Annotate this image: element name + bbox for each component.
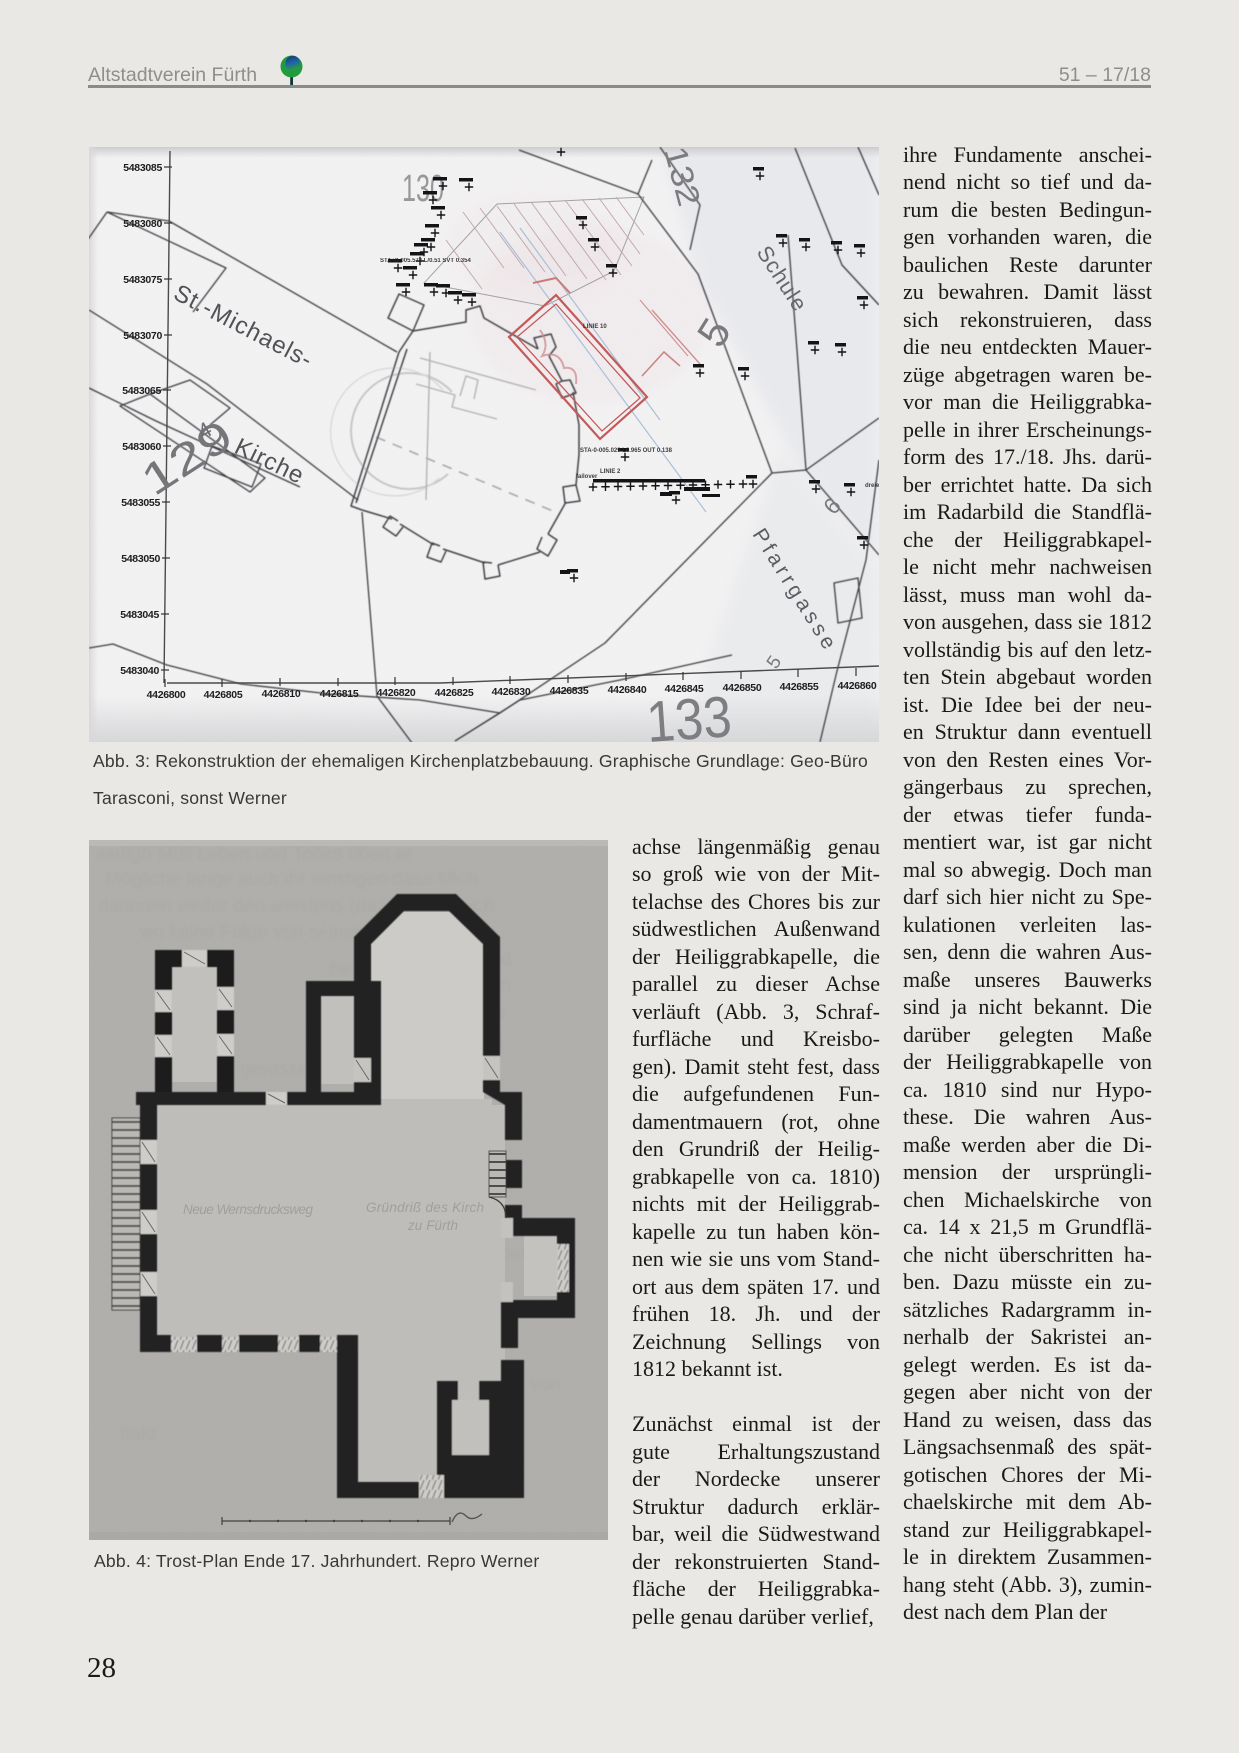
svg-text:5483070: 5483070 <box>123 330 162 342</box>
svg-text:4426860: 4426860 <box>838 680 877 692</box>
svg-text:5483085: 5483085 <box>123 162 162 174</box>
svg-text:zu Fürth: zu Fürth <box>407 1218 458 1233</box>
svg-text:4426840: 4426840 <box>608 684 647 696</box>
svg-text:130: 130 <box>402 168 444 210</box>
svg-text:5483080: 5483080 <box>123 218 162 230</box>
svg-text:STA+0-005.574 L/0.51 SVT 0.354: STA+0-005.574 L/0.51 SVT 0.354 <box>380 258 471 264</box>
svg-text:4426830: 4426830 <box>492 686 531 698</box>
svg-text:Neue Wernsdrucksweg: Neue Wernsdrucksweg <box>183 1202 313 1217</box>
svg-text:failover: failover <box>576 474 598 480</box>
svg-text:5483075: 5483075 <box>123 274 162 286</box>
svg-text:bald: bald <box>120 1424 156 1445</box>
svg-text:LINIE 2: LINIE 2 <box>600 469 621 475</box>
svg-text:133: 133 <box>644 684 733 742</box>
svg-text:asdfgh Müll Leben und Todes üb: asdfgh Müll Leben und Todes üben er <box>95 844 413 865</box>
svg-text:STA-0-005.029 L6.965 OUT 0.138: STA-0-005.029 L6.965 OUT 0.138 <box>580 448 673 454</box>
svg-text:5483040: 5483040 <box>120 665 159 677</box>
svg-text:4426855: 4426855 <box>780 681 819 693</box>
svg-text:4426835: 4426835 <box>550 685 589 697</box>
svg-text:Gründriß des Kirch: Gründriß des Kirch <box>366 1200 484 1215</box>
svg-text:4426820: 4426820 <box>377 687 416 699</box>
svg-text:5483065: 5483065 <box>122 385 161 397</box>
svg-text:4426825: 4426825 <box>435 687 474 699</box>
svg-text:von: von <box>530 1374 561 1395</box>
svg-text:5483050: 5483050 <box>121 553 160 565</box>
svg-text:4426815: 4426815 <box>320 688 359 700</box>
svg-text:4426805: 4426805 <box>204 689 243 701</box>
svg-text:LINIE 10: LINIE 10 <box>583 324 607 330</box>
svg-text:dreieck: dreieck <box>865 483 879 489</box>
svg-text:5483045: 5483045 <box>120 609 159 621</box>
svg-text:4426800: 4426800 <box>147 689 186 701</box>
svg-text:4426810: 4426810 <box>262 688 301 700</box>
svg-text:Mögliche lange auch ihr einsti: Mögliche lange auch ihr einstigen dass M… <box>105 869 478 890</box>
